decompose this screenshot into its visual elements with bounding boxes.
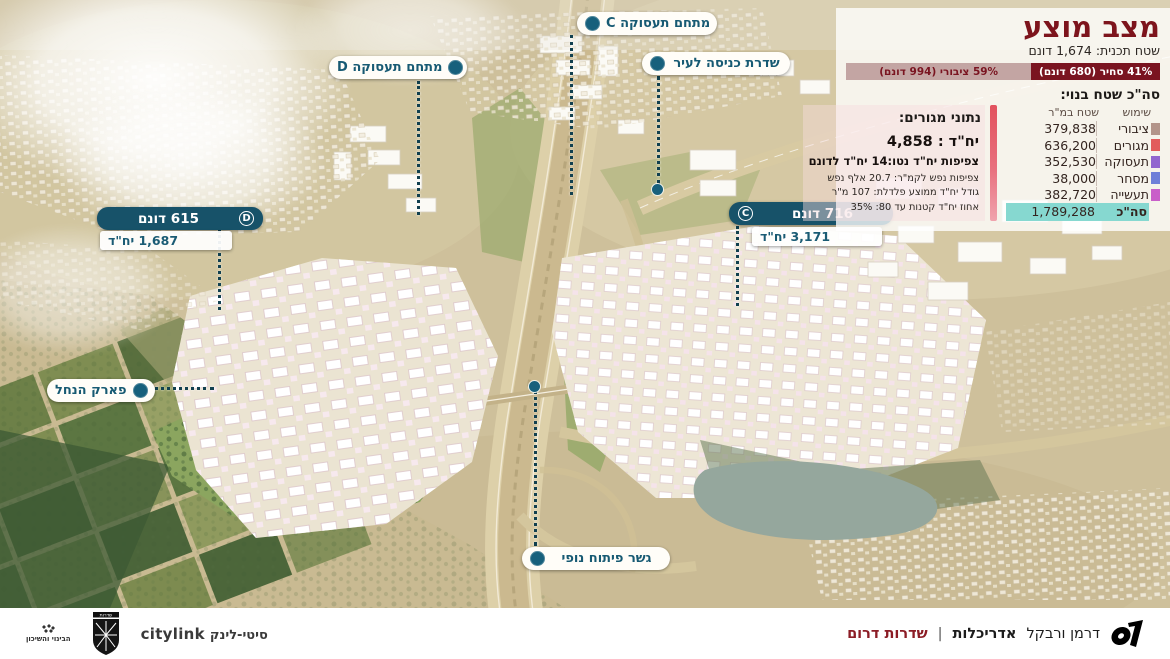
callout-quarter-d-units: 1,687 יח"ד: [100, 231, 232, 250]
units-total: יח"ד : 4,858: [809, 132, 979, 154]
leader-line-employment-d: [417, 81, 420, 215]
leader-end-dot: [651, 183, 664, 196]
pin-dot-icon: [133, 383, 148, 398]
total-area: 1,789,288: [1006, 204, 1095, 219]
partner-logos: הבינוי והשיכון שדרות citylink סיטי-לינק: [26, 612, 268, 656]
pin-dot-icon: [530, 551, 545, 566]
ministry-emblem-icon: [41, 624, 55, 633]
pin-dot-icon: [585, 16, 600, 31]
landuse-split-bar: 41% סחיר (680 דונם) 59% ציבורי (994 דונם…: [846, 63, 1160, 80]
callout-quarter-d-area: 615 דונם D: [97, 207, 263, 230]
area-column-header: שטח במ"ר: [1006, 106, 1099, 119]
quarter-letter-badge: C: [738, 206, 753, 221]
built-area-header: סה"כ שטח בנוי:: [1006, 87, 1160, 103]
leader-line-employment-c: [570, 35, 573, 195]
total-label: סה"כ: [1095, 204, 1149, 219]
callout-label: גשר פיתוח נופי: [551, 551, 662, 566]
use-column-header: שימוש: [1099, 106, 1151, 119]
plan-area-subtitle: שטח תכנית: 1,674 דונם: [846, 43, 1160, 58]
landuse-swatch: [1151, 156, 1160, 168]
landuse-row: מסחר 38,000: [1006, 170, 1160, 187]
built-area-table: סה"כ שטח בנוי: שימוש שטח במ"ר ציבורי 379…: [1006, 86, 1160, 221]
footer-bar: הבינוי והשיכון שדרות citylink סיטי-לינק: [0, 608, 1170, 659]
architect-credit: דרמן ורבקל אדריכלות | שדרות דרום: [847, 619, 1144, 649]
callout-employment-c: מתחם תעסוקה C: [577, 12, 717, 35]
landuse-swatch: [1151, 172, 1160, 184]
quarter-units-label: 3,171 יח"ד: [760, 229, 830, 244]
landuse-swatch: [1151, 139, 1160, 151]
firm-name: דרמן ורבקל: [1026, 626, 1100, 642]
bar-segment-marketable: 41% סחיר (680 דונם): [1031, 63, 1160, 80]
residential-color-strip: [990, 105, 997, 221]
callout-label: פארק הנחל: [55, 383, 127, 398]
quarter-letter-badge: D: [239, 211, 254, 226]
project-name: שדרות דרום: [847, 626, 928, 642]
sderot-logo-label: שדרות: [99, 613, 112, 618]
derman-verbakel-logo-icon: [1110, 619, 1144, 649]
net-density: צפיפות יח"ד נטו:14 יח"ד לדונם: [809, 153, 979, 170]
residential-detail: גודל יח"ד ממוצע פלדלת: 107 מ"ר: [809, 186, 979, 201]
proposed-state-panel: מצב מוצע שטח תכנית: 1,674 דונם 41% סחיר …: [836, 8, 1170, 231]
residential-header: נתוני מגורים:: [809, 108, 981, 128]
callout-label: מתחם תעסוקה C: [606, 16, 710, 31]
residential-detail: אחוז יח"ד קטנות עד 80: 35%: [809, 201, 979, 216]
table-header-row: שימוש שטח במ"ר: [1006, 106, 1160, 119]
bar-segment-public: 59% ציבורי (994 דונם): [846, 63, 1031, 80]
panel-title: מצב מוצע: [846, 12, 1160, 42]
ministry-of-housing-logo: הבינוי והשיכון: [26, 624, 71, 643]
firm-name-bold: אדריכלות: [952, 626, 1016, 642]
residential-detail: צפיפות נפש לקמ"ר: 20.7 אלף נפש: [809, 172, 979, 187]
pin-dot-icon: [448, 60, 463, 75]
slide: מתחם תעסוקה C מתחם תעסוקה D שדרת כניסה ל…: [0, 0, 1170, 659]
callout-stream-park: פארק הנחל: [47, 379, 155, 402]
residential-data-block: נתוני מגורים: יח"ד : 4,858 צפיפות יח"ד נ…: [803, 105, 997, 221]
leader-end-dot: [528, 380, 541, 393]
callout-label: מתחם תעסוקה D: [337, 60, 442, 75]
quarter-area-label: 615 דונם: [106, 211, 231, 227]
landuse-swatch: [1151, 123, 1160, 135]
callout-employment-d: מתחם תעסוקה D: [329, 56, 467, 79]
landuse-row: ציבורי 379,838: [1006, 120, 1160, 137]
callout-entry-boulevard: שדרת כניסה לעיר: [642, 52, 790, 75]
credit-divider: |: [938, 626, 943, 642]
leader-line-landscape-bridge: [534, 390, 537, 546]
sderot-municipality-logo: שדרות: [91, 612, 121, 656]
landuse-row: תעסוקה 352,530: [1006, 153, 1160, 170]
landuse-swatch: [1151, 189, 1160, 201]
pin-dot-icon: [650, 56, 665, 71]
landuse-row: תעשייה 382,720: [1006, 186, 1160, 203]
landuse-row: מגורים 636,200: [1006, 137, 1160, 154]
landuse-total-row: סה"כ 1,789,288: [1006, 203, 1160, 221]
citylink-logo: citylink סיטי-לינק: [141, 625, 268, 643]
callout-landscape-bridge: גשר פיתוח נופי: [522, 547, 670, 570]
leader-line-quarter-c: [736, 226, 739, 306]
leader-line-entry-boulevard: [657, 76, 660, 184]
quarter-units-label: 1,687 יח"ד: [108, 233, 178, 248]
callout-label: שדרת כניסה לעיר: [671, 56, 782, 71]
